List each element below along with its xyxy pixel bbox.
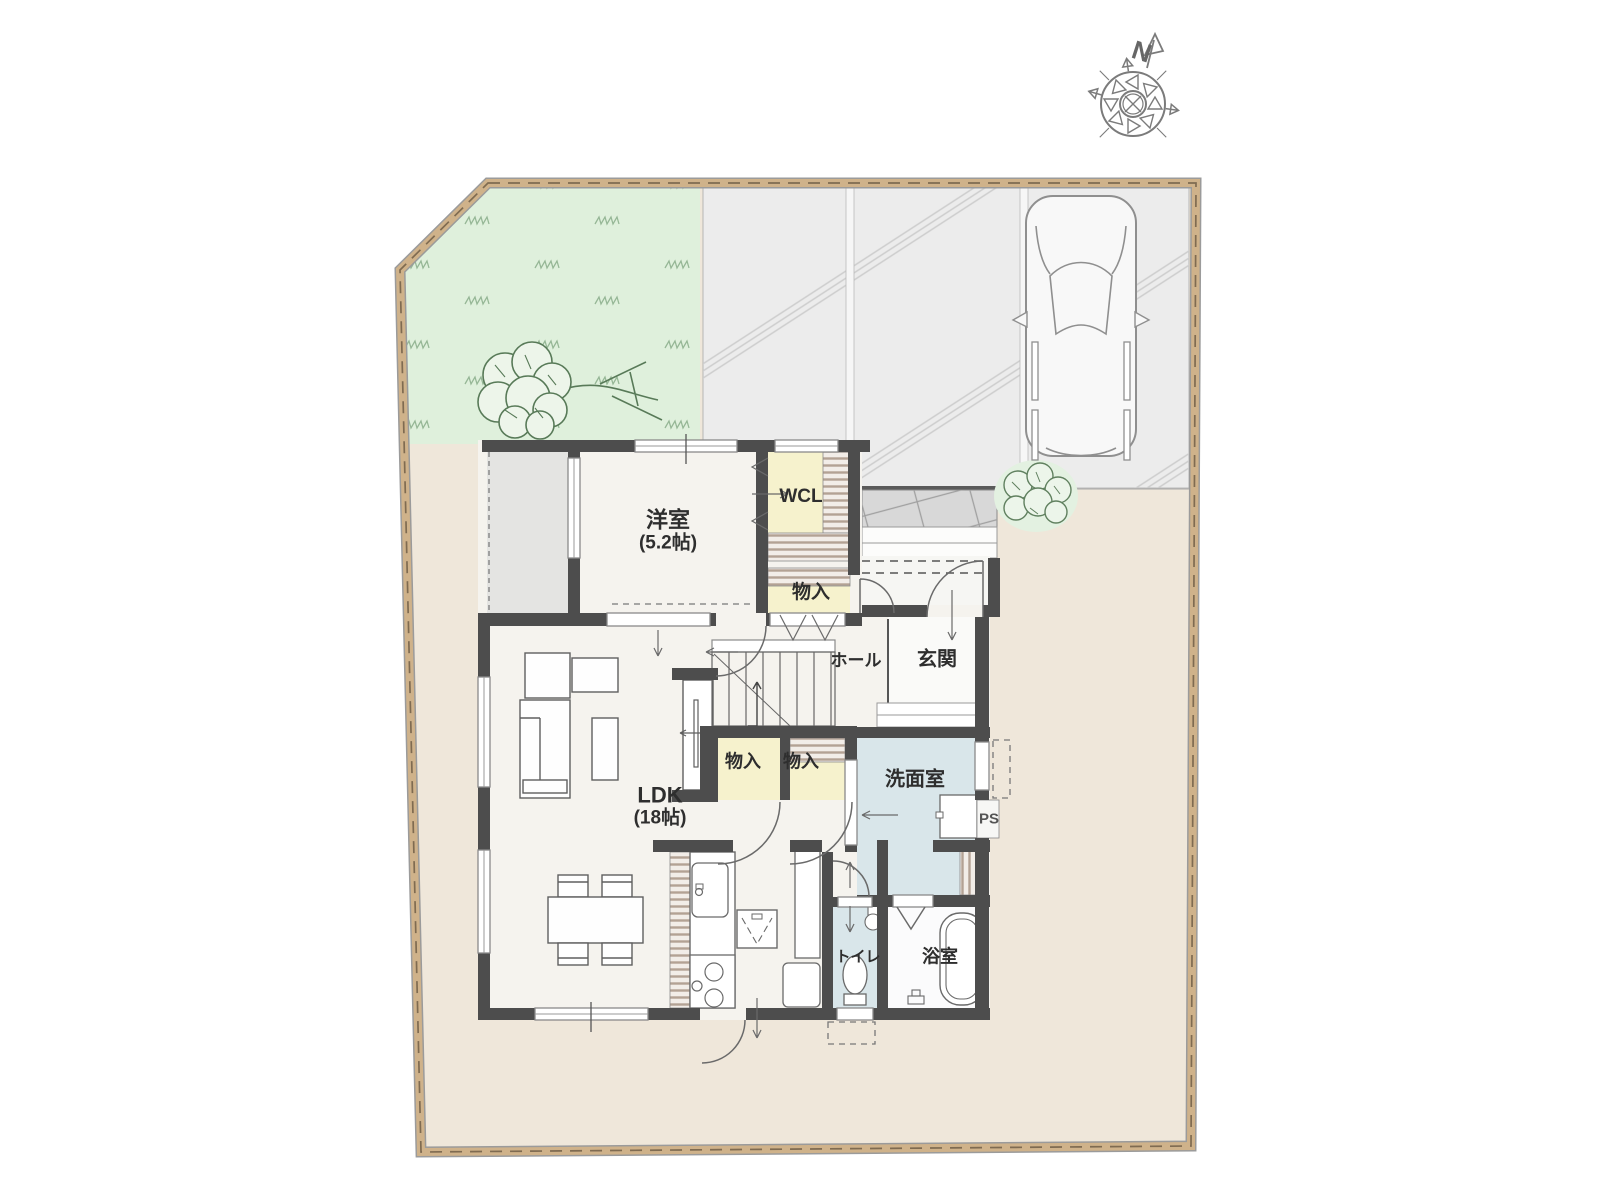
room-label-storage-stairs-right: 物入 bbox=[783, 752, 819, 773]
room-label-washroom: 洗面室 bbox=[885, 769, 945, 792]
room-label-pipe-space: PS bbox=[979, 810, 999, 827]
western-room-size: (5.2帖) bbox=[639, 533, 697, 555]
approach-bush bbox=[994, 460, 1078, 532]
room-label-wcl: WCL bbox=[779, 486, 822, 508]
kitchen-sink bbox=[692, 863, 728, 917]
room-label-hall: ホール bbox=[831, 651, 882, 671]
room-label-western-room: 洋室 (5.2帖) bbox=[639, 507, 697, 554]
room-label-bathroom: 浴室 bbox=[922, 947, 958, 968]
kitchen-island bbox=[737, 910, 777, 948]
room-label-storage-stairs-left: 物入 bbox=[725, 752, 761, 773]
room-label-ldk: LDK (18帖) bbox=[634, 782, 687, 829]
refrigerator bbox=[795, 848, 820, 958]
room-label-toilet: トイレ bbox=[835, 948, 880, 965]
room-label-entrance: 玄関 bbox=[917, 649, 957, 672]
washbasin bbox=[936, 795, 977, 838]
ldk-size: (18帖) bbox=[634, 808, 687, 830]
car bbox=[1013, 196, 1149, 460]
western-room-name: 洋室 bbox=[646, 507, 690, 532]
sofa-set bbox=[520, 653, 618, 798]
ldk-name: LDK bbox=[637, 782, 682, 807]
compass-icon: N bbox=[1087, 34, 1179, 137]
terrace bbox=[487, 452, 568, 613]
compass-north-label: N bbox=[1128, 34, 1155, 68]
cupboard bbox=[783, 963, 820, 1007]
room-label-storage-upper: 物入 bbox=[792, 582, 830, 604]
floor-plan-canvas: N 洋室 (5.2帖) WCL 物入 ホール 玄関 洗面室 PS LDK (18… bbox=[0, 0, 1600, 1200]
